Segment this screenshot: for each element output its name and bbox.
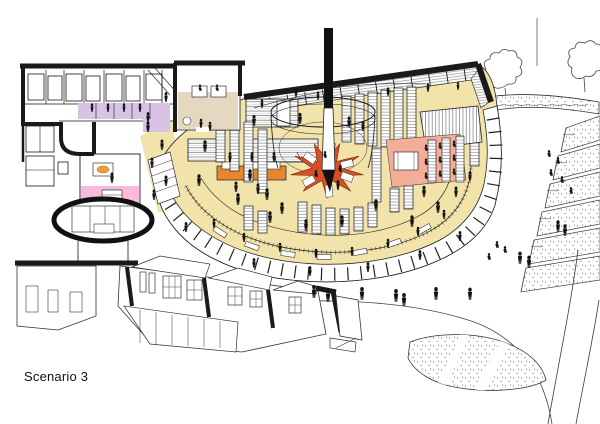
axonometric-plan-drawing bbox=[0, 0, 600, 424]
hedge bbox=[489, 95, 599, 114]
stage-room bbox=[80, 154, 140, 204]
oval-stair-tower bbox=[54, 199, 152, 263]
wall-picture bbox=[93, 163, 113, 176]
pedestrian-crossing bbox=[408, 334, 546, 394]
meeting-room bbox=[176, 64, 240, 132]
tree-icon bbox=[568, 41, 600, 79]
scenario-caption: Scenario 3 bbox=[24, 369, 88, 384]
terraced-garden bbox=[521, 116, 600, 292]
scenario-drawing-page: { "caption": { "label": "Scenario 3" }, … bbox=[0, 0, 600, 424]
central-mast bbox=[322, 28, 335, 192]
